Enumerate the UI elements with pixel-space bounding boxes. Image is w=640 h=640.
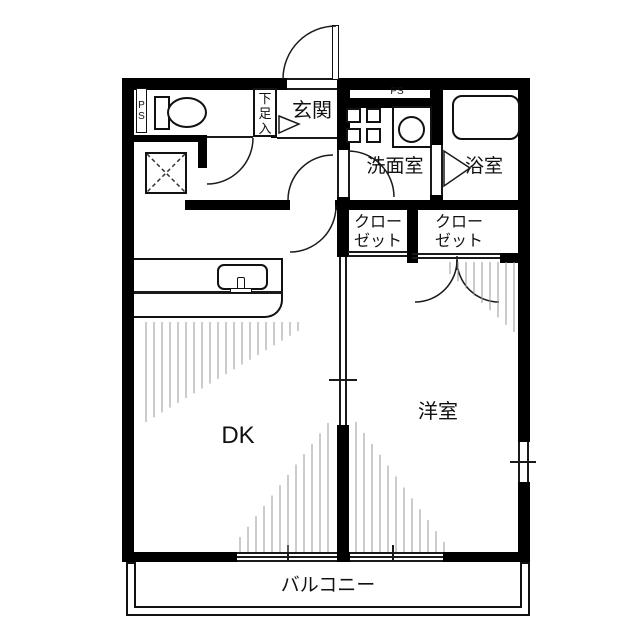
entrance-label: 玄関 [288,100,336,123]
washroom-label: 洗面室 [362,156,428,178]
wall-between-closets [407,210,418,263]
wall-toilet-bottom [122,135,207,142]
closet-left-door-line [348,251,407,253]
window-line [350,556,443,558]
entrance-door-leaf [332,25,339,80]
closet-left-label: クロー ゼット [350,213,406,251]
floor-plan: 玄関 下 足 入 P S PS 洗面室 浴室 クロー ゼット クロー ゼット D… [0,0,640,640]
kitchen-counter-edge [134,291,283,294]
shoe-cabinet-label: 下 足 入 [254,91,276,136]
closet-door-swing-arc [415,260,457,302]
sliding-door-line [339,257,341,425]
wall-hall-bottom-left [185,200,290,210]
vanity-cabinet-icon [346,128,361,143]
vanity-cabinet-icon [366,108,381,123]
wall-stub-hall [198,137,207,168]
wall-closet-right-stub [500,253,518,263]
closet-right-door-line [412,257,500,259]
vanity-cabinet-icon [346,108,361,123]
pipe-space-top-label: PS [382,86,412,98]
refrigerator-space-icon [145,152,187,194]
entrance-step-line [277,137,337,139]
pipe-space-left-label: P S [136,100,147,122]
faucet-bar-icon [230,288,252,293]
washing-machine-drum-icon [398,116,425,143]
dining-kitchen-label: DK [216,422,260,450]
closet-door-swing-arc [457,260,499,302]
toilet-door-leaf [207,136,253,138]
wall-bottom-left [122,552,237,562]
vanity-cabinet-icon [366,128,381,143]
closet-right-label: クロー ゼット [423,213,495,251]
window-tick [510,461,536,463]
wall-bath-left-stub [430,195,443,210]
entrance-opening-line [287,88,337,90]
western-room-label: 洋室 [416,401,460,424]
hall-door-swing-arc [288,155,333,200]
closet-right-door-line [412,253,500,255]
bathtub-icon [452,95,520,140]
wall-divider-top [337,198,349,257]
sliding-door-tick [329,379,357,381]
window-line [350,552,443,554]
washroom-door-jamb [337,150,339,197]
wall-left [122,78,134,562]
sliding-door-line [345,257,347,425]
wall-right-upper [518,78,530,442]
balcony-label: バルコニー [276,575,380,597]
toilet-door-swing-arc [207,138,253,184]
toilet-bowl-icon [167,97,207,128]
wall-divider-bottom [337,425,349,562]
wall-bottom-right [443,552,530,562]
wall-right-lower [518,482,530,562]
closet-left-door-line [348,255,407,257]
bathroom-door-jamb [430,145,432,195]
bathroom-label: 浴室 [462,156,506,178]
entrance-door-swing-arc [283,26,336,79]
plan-overlay [0,0,640,640]
washroom-door-jamb [348,150,350,197]
entrance-opening-line [287,78,337,80]
bathroom-door-jamb [441,145,443,195]
dk-door-swing-arc [290,206,336,252]
